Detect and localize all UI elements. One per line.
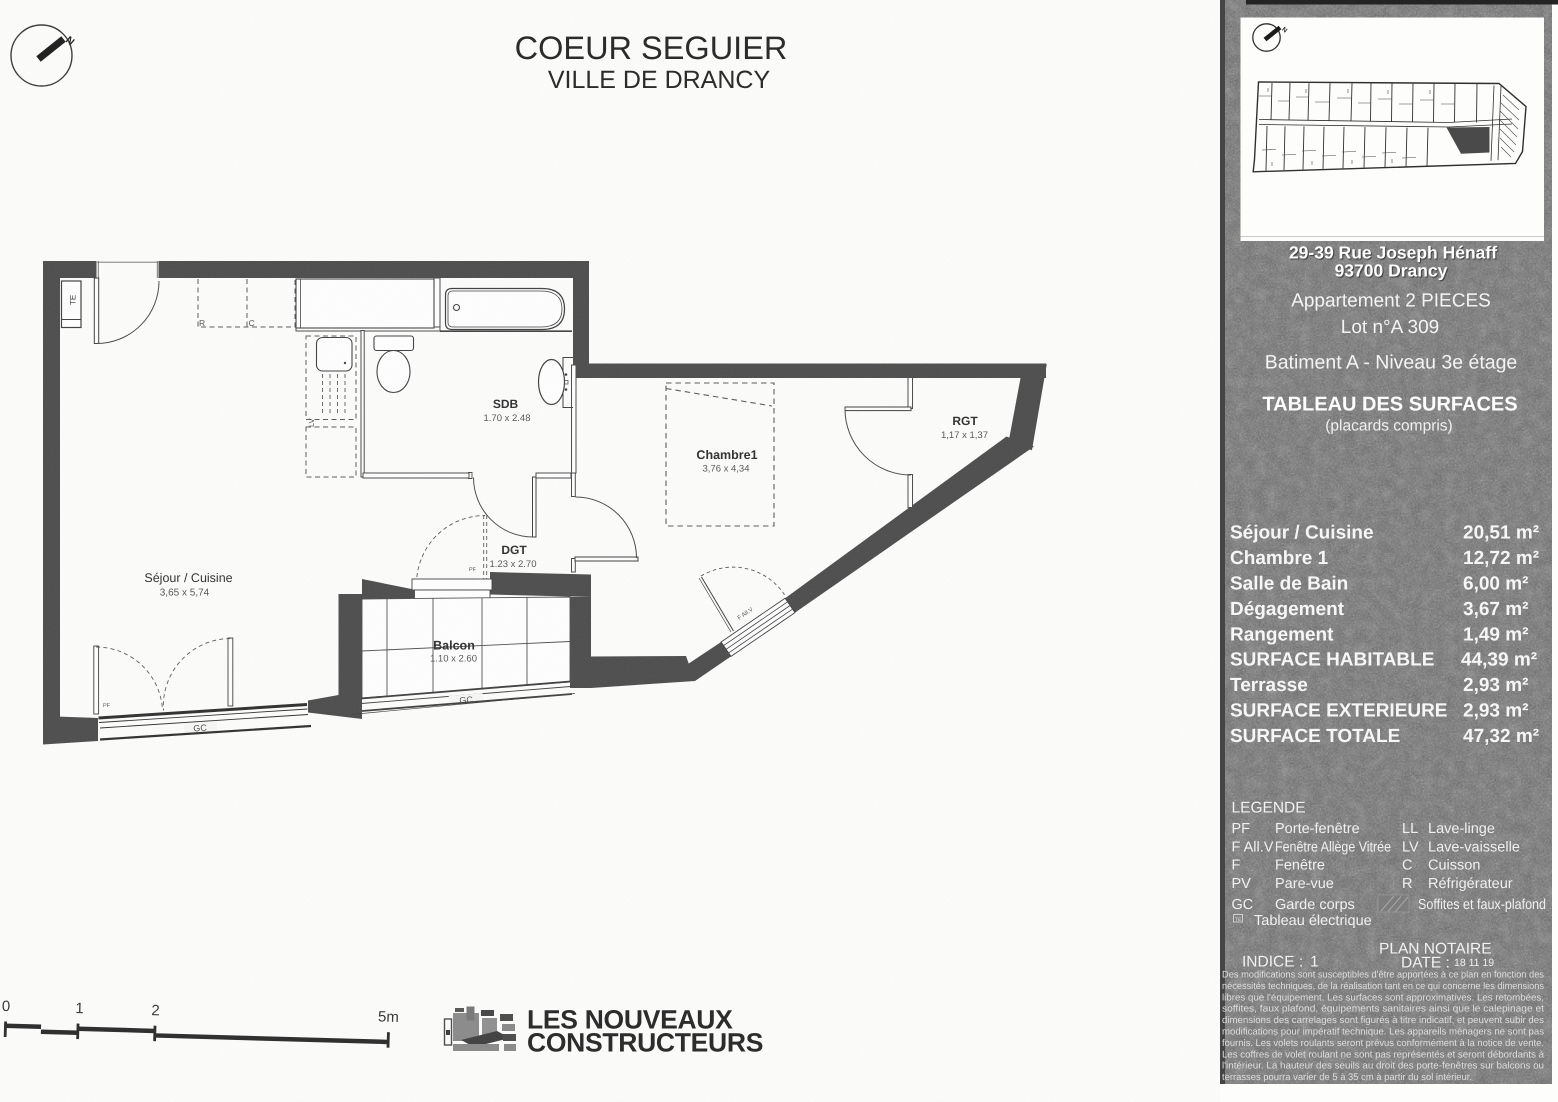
svg-text:TE: TE [1235, 917, 1242, 923]
svg-text:Fenêtre Allège Vitrée: Fenêtre Allège Vitrée [1275, 840, 1391, 856]
svg-text:modifications pour impératif t: modifications pour impératif technique. … [1222, 1027, 1544, 1038]
svg-text:LV: LV [1402, 840, 1419, 856]
svg-text:SURFACE TOTALE: SURFACE TOTALE [1230, 726, 1400, 747]
svg-text:C: C [1402, 858, 1412, 874]
svg-text:20,51 m²: 20,51 m² [1463, 523, 1539, 544]
svg-text:Soffites et faux-plafond: Soffites et faux-plafond [1418, 897, 1546, 913]
svg-text:PF: PF [1232, 821, 1251, 837]
svg-text:Les coffres de volet roulant n: Les coffres de volet roulant ne sont pas… [1222, 1049, 1545, 1060]
svg-text:1: 1 [1310, 954, 1319, 971]
svg-text:Garde corps: Garde corps [1275, 897, 1355, 913]
svg-text:F All.V: F All.V [1232, 840, 1274, 856]
svg-text:18 11 19: 18 11 19 [1454, 957, 1494, 969]
svg-text:fournis. Les volets roulants: fournis. Les volets roulants seront prév… [1222, 1038, 1544, 1049]
svg-text:Salle de Bain: Salle de Bain [1230, 574, 1348, 595]
svg-text:dimensions des carrelages sont: dimensions des carrelages sont figurés à… [1222, 1015, 1544, 1026]
svg-text:Tableau électrique: Tableau électrique [1254, 913, 1372, 929]
svg-text:l'intérieur. La hauteur des se: l'intérieur. La hauteur des seuils au dr… [1222, 1061, 1544, 1072]
svg-text:Séjour / Cuisine: Séjour / Cuisine [1230, 523, 1374, 544]
svg-text:LL: LL [1402, 821, 1418, 837]
svg-text:12,72 m²: 12,72 m² [1463, 548, 1539, 569]
svg-text:nécessités techniques, de la r: nécessités techniques, de la réalisation… [1222, 981, 1544, 992]
svg-text:Batiment A - Niveau 3e étage: Batiment A - Niveau 3e étage [1265, 352, 1518, 374]
svg-text:libres que l'équipement. Les s: libres que l'équipement. Les surfaces so… [1222, 992, 1544, 1003]
svg-text:terrasses pourra varier de 5 à: terrasses pourra varier de 5 à 35 cm à p… [1222, 1072, 1472, 1083]
svg-text:(placards compris): (placards compris) [1325, 418, 1452, 435]
svg-text:SURFACE EXTERIEURE: SURFACE EXTERIEURE [1230, 701, 1447, 722]
svg-text:3,67 m²: 3,67 m² [1463, 599, 1528, 620]
svg-text:SURFACE HABITABLE: SURFACE HABITABLE [1230, 650, 1434, 671]
svg-text:6,00 m²: 6,00 m² [1463, 574, 1528, 595]
svg-text:93700 Drancy: 93700 Drancy [1335, 261, 1448, 281]
svg-text:Réfrigérateur: Réfrigérateur [1428, 876, 1513, 892]
svg-text:F: F [1232, 858, 1241, 874]
svg-text:Terrasse: Terrasse [1230, 675, 1308, 696]
svg-text:47,32 m²: 47,32 m² [1463, 726, 1539, 747]
svg-text:INDICE :: INDICE : [1242, 954, 1303, 971]
svg-text:Porte-fenêtre: Porte-fenêtre [1275, 821, 1360, 837]
svg-text:soffites, faux plafond, équipe: soffites, faux plafond, équipements sani… [1222, 1004, 1544, 1015]
svg-text:2,93 m²: 2,93 m² [1463, 701, 1528, 722]
svg-text:LEGENDE: LEGENDE [1232, 800, 1306, 817]
svg-text:GC: GC [1232, 897, 1254, 913]
svg-text:Lave-vaisselle: Lave-vaisselle [1428, 840, 1520, 856]
svg-text:44,39 m²: 44,39 m² [1461, 650, 1537, 671]
svg-text:2,93 m²: 2,93 m² [1463, 675, 1528, 696]
svg-text:R: R [1402, 876, 1412, 892]
svg-text:Lave-linge: Lave-linge [1428, 821, 1495, 837]
svg-text:Lot n°A 309: Lot n°A 309 [1341, 317, 1439, 338]
svg-text:1,49 m²: 1,49 m² [1463, 625, 1528, 646]
svg-text:PV: PV [1232, 876, 1252, 892]
svg-text:Dégagement: Dégagement [1230, 599, 1345, 620]
svg-text:Appartement 2 PIECES: Appartement 2 PIECES [1291, 291, 1491, 312]
svg-text:29-39 Rue Joseph Hénaff: 29-39 Rue Joseph Hénaff [1289, 243, 1497, 263]
svg-text:Rangement: Rangement [1230, 625, 1334, 646]
svg-text:Pare-vue: Pare-vue [1275, 876, 1334, 892]
svg-text:Cuisson: Cuisson [1428, 858, 1480, 874]
svg-text:Des modifications sont suscept: Des modifications sont susceptibles d'êt… [1222, 970, 1544, 981]
svg-text:Fenêtre: Fenêtre [1275, 858, 1325, 874]
svg-text:Chambre 1: Chambre 1 [1230, 548, 1329, 569]
svg-text:TABLEAU DES SURFACES: TABLEAU DES SURFACES [1262, 394, 1517, 416]
